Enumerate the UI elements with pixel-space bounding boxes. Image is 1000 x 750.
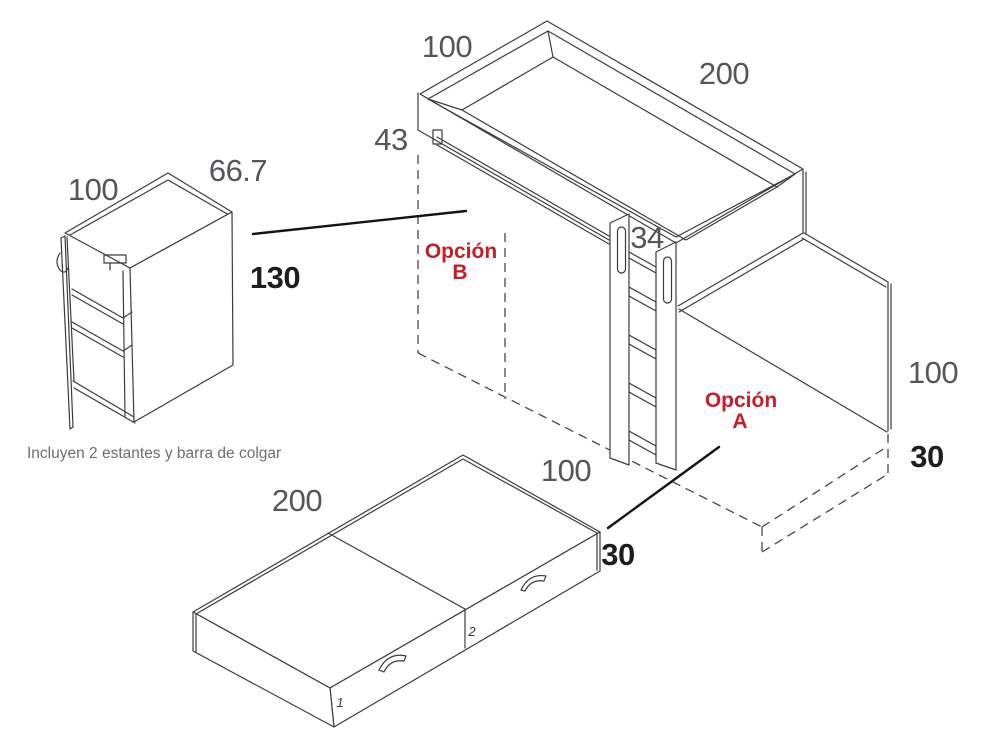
ladder-right-upright <box>656 242 676 470</box>
wardrobe-note: Incluyen 2 estantes y barra de colgar <box>27 445 281 462</box>
wardrobe-drawing <box>57 173 233 429</box>
platform-height-dim: 30 <box>910 439 943 474</box>
underbed-depth-dim: 100 <box>541 453 591 488</box>
ladder-width-dim: 34 <box>630 220 664 255</box>
wardrobe-bottom-panel <box>73 381 135 423</box>
bench-length-dim: 200 <box>272 483 322 518</box>
option-b-label: Opción <box>425 240 497 263</box>
headboard-top-edge <box>802 233 888 287</box>
option-a-label: Opción <box>705 389 777 412</box>
platform-top-front-dashed-edge <box>762 446 888 527</box>
option-a-letter: A <box>732 410 747 433</box>
platform-bottom-dashed-edge <box>762 474 888 552</box>
wardrobe-height-dim: 130 <box>250 260 300 295</box>
bed-side-height-dim: 100 <box>908 355 958 390</box>
wardrobe-depth-dim: 66.7 <box>209 153 267 188</box>
bed-frame-end-bottom-edge <box>678 233 804 312</box>
ladder-rung <box>629 431 656 455</box>
wardrobe-opening-right-edge <box>123 271 125 417</box>
wardrobe-width-dim: 100 <box>68 172 118 207</box>
underbed-wall-bottom-edge <box>679 309 887 432</box>
option-b-letter: B <box>452 261 467 284</box>
bed-width-dim: 100 <box>422 29 472 64</box>
ladder-rung <box>629 287 656 311</box>
headboard-right-edge <box>888 282 891 431</box>
isometric-line-drawing: 100 66.7 130 Incluyen 2 estantes y barra… <box>0 0 1000 750</box>
ladder-left-upright <box>610 214 629 465</box>
bed-top-rim-outer <box>420 21 803 243</box>
storage-bench-drawing <box>193 455 600 727</box>
bed-rail-height-dim: 43 <box>374 122 407 157</box>
furniture-dimension-diagram: 100 66.7 130 Incluyen 2 estantes y barra… <box>0 0 1000 750</box>
bench-module-2-number: 2 <box>467 624 476 639</box>
bench-module-1-number: 1 <box>336 695 343 710</box>
bed-right-corner-edge <box>803 170 806 234</box>
ladder-rung <box>629 335 656 359</box>
ladder-rung <box>629 383 656 407</box>
bench-height-dim: 30 <box>601 537 634 572</box>
wardrobe-shelf <box>72 322 132 357</box>
leader-line-wardrobe-to-option-b <box>253 211 466 234</box>
bed-length-dim: 200 <box>699 56 749 91</box>
